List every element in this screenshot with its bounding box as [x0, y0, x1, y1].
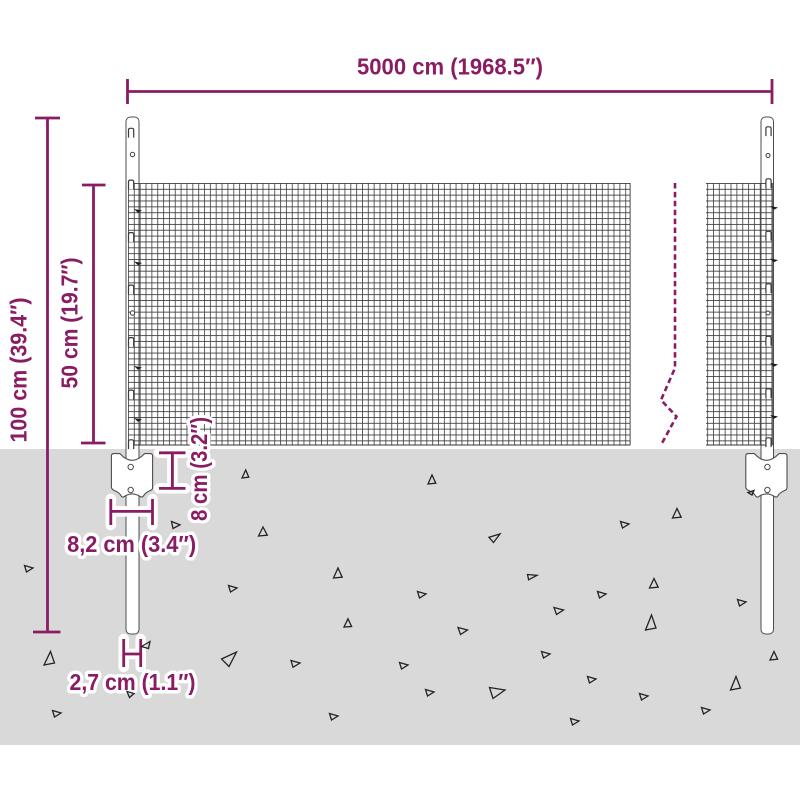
svg-text:50 cm (19.7″): 50 cm (19.7″) — [57, 258, 83, 389]
svg-text:2,7 cm (1.1″): 2,7 cm (1.1″) — [70, 669, 196, 695]
svg-text:8,2 cm (3.4″): 8,2 cm (3.4″) — [67, 531, 196, 557]
svg-text:100 cm (39.4″): 100 cm (39.4″) — [6, 298, 32, 443]
svg-text:8 cm (3.2″): 8 cm (3.2″) — [186, 417, 212, 521]
svg-text:5000 cm (1968.5″): 5000 cm (1968.5″) — [357, 54, 543, 80]
